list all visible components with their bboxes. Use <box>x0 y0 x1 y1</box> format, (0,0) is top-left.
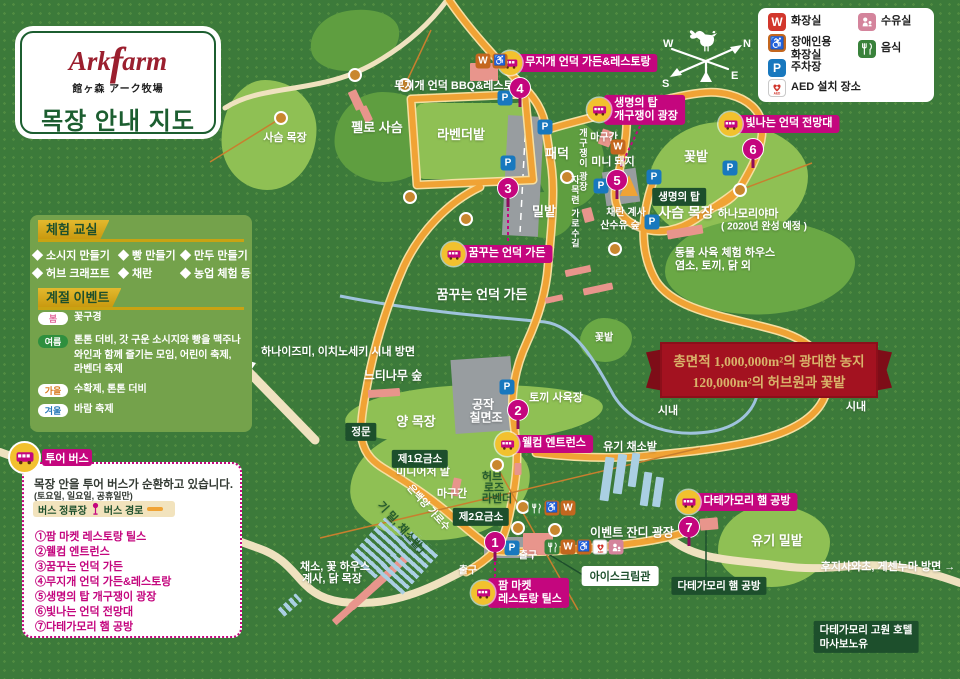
map-area-label: 유기 밀밭 <box>751 534 802 548</box>
bus-stop-facility-badge: 생명의 탑개구쟁이 광장 <box>587 95 685 125</box>
tree-marker-icon <box>548 523 562 537</box>
accessible-toilet-icon: ♿ <box>493 54 508 69</box>
field-patch <box>335 92 440 182</box>
bus-stop-number: 3 <box>504 181 511 196</box>
brand-text: Ark <box>69 48 111 75</box>
parking-icon: P <box>723 161 738 176</box>
legend-box <box>758 8 934 102</box>
building <box>613 454 627 495</box>
bus-stop-facility-badge: 웰컴 엔트런스 <box>495 432 593 456</box>
parking-icon: P <box>538 120 553 135</box>
tree-marker-icon <box>403 190 417 204</box>
ribbon-line2: 120,000m²의 허브원과 꽃밭 <box>693 371 846 391</box>
map-area-label: 토끼 사육장 <box>529 392 583 404</box>
facility-badge: 다테가모리 햄 공방 <box>671 577 766 595</box>
ribbon-body: 총면적 1,000,000m²의 광대한 농지 120,000m²의 허브원과 … <box>660 342 878 398</box>
field-patch <box>538 120 604 208</box>
farm-guide-map: Arkfarm 館ヶ森 アーク牧場 목장 안내 지도 W 화장실 ♿ 장애인용 … <box>0 0 960 679</box>
facility-badge: 생명의 탑 <box>652 188 706 206</box>
bus-stop-number-marker: 6 <box>742 138 764 160</box>
bus-icon <box>676 490 700 514</box>
map-area-label: 채란 계사 <box>606 208 646 219</box>
map-area-label: 꽃밭 <box>595 333 613 344</box>
building <box>350 517 410 578</box>
facility-badge: 다테가모리 고원 호텔마사보노유 <box>814 621 919 653</box>
building <box>599 457 614 502</box>
map-area-label: 유기 채소밭 <box>603 441 657 453</box>
map-area-label: 펠로 사슴 <box>351 121 402 135</box>
field-patch <box>518 192 574 238</box>
building <box>332 599 360 626</box>
tree-marker-icon <box>459 212 473 226</box>
banner-underline <box>38 239 244 242</box>
field-patch <box>665 220 855 315</box>
map-area-label: 염소, 토끼, 닭 외 <box>675 260 751 272</box>
facility-badge: 정문 <box>345 423 376 441</box>
experience-panel: 체험 교실 계절 이벤트 <box>30 215 252 432</box>
map-area-label: 양 목장 <box>396 415 436 429</box>
compass-s: S <box>662 78 669 90</box>
tree-marker-icon <box>348 68 362 82</box>
ribbon-line1: 총면적 1,000,000m²의 광대한 농지 <box>673 350 864 370</box>
map-area-label: 라벤더 <box>482 493 512 505</box>
map-area-label: 동물 사육 체험 하우스 <box>675 247 775 259</box>
accessible-toilet-icon: ♿ <box>545 501 560 516</box>
map-area-label: 미니어처 말 <box>396 466 450 478</box>
building <box>581 207 594 223</box>
toilet-icon: W <box>561 501 576 516</box>
tower-marker <box>620 175 638 196</box>
map-area-label: 라벤더밭 <box>437 128 485 142</box>
building <box>376 529 440 595</box>
page-title: 목장 안내 지도 <box>41 101 195 136</box>
toilet-icon: W <box>611 140 626 155</box>
building <box>368 388 400 398</box>
area-info-ribbon: 총면적 1,000,000m²의 광대한 농지 120,000m²의 허브원과 … <box>646 342 892 398</box>
bus-stop-number-marker: 1 <box>484 531 506 553</box>
logo-plaque: Arkfarm 館ヶ森 アーク牧場 목장 안내 지도 <box>15 26 221 139</box>
field-patch <box>648 122 808 242</box>
building <box>666 224 703 239</box>
map-area-label: 은백양 가로수 <box>405 483 452 533</box>
building <box>598 128 615 147</box>
compass-e: E <box>731 70 738 82</box>
map-area-label: 이벤트 잔디 광장 <box>590 526 674 539</box>
field-patch <box>222 80 317 190</box>
building <box>348 574 388 611</box>
compass-n: N <box>743 38 751 50</box>
map-area-label: ( 2020년 완성 예정 ) <box>721 222 807 233</box>
seasonal-title-banner: 계절 이벤트 <box>38 288 121 307</box>
map-area-label: 하나모리야마 <box>718 208 779 220</box>
bus-route-line-sample <box>147 507 163 511</box>
brand-f: f <box>110 42 123 82</box>
bus-stop-number: 6 <box>749 142 756 157</box>
bus-icon <box>718 112 742 136</box>
banner-underline-2 <box>38 307 244 310</box>
map-area-label: 후지사와초, 게센누마 방면 → <box>821 561 956 573</box>
building <box>700 517 719 531</box>
parking-icon: P <box>594 179 609 194</box>
map-area-label: 자목련 가로수길 <box>569 175 579 249</box>
logo-plaque-inner: Arkfarm 館ヶ森 アーク牧場 목장 안내 지도 <box>20 31 216 134</box>
map-area-label: 무지개 언덕 BBQ&레스토랑 <box>394 80 524 92</box>
building <box>652 477 664 508</box>
map-area-label: 칠면조 <box>469 411 502 424</box>
map-area-label: 사슴 목장 <box>263 132 307 144</box>
bus-icon <box>442 242 466 266</box>
bus-stop-key-label: 버스 정류장 <box>38 502 87 517</box>
food-icon <box>545 540 560 555</box>
map-area-label: 기 밀, 채소밭」 <box>375 500 431 561</box>
bus-stop-facility-label: 다테가모리 햄 공방 <box>693 493 797 510</box>
brand-logo: Arkfarm <box>69 37 167 77</box>
field-patch <box>305 3 404 78</box>
bus-stop-facility-badge: 꿈꾸는 언덕 가든 <box>442 242 553 266</box>
bus-stop-number-marker: 7 <box>678 516 700 538</box>
field-patch <box>415 103 529 179</box>
map-area-label: 미니 돼지 <box>591 156 635 168</box>
facility-badge: 제1요금소 <box>392 450 448 468</box>
tour-bus-icon <box>8 441 41 474</box>
tree-marker-icon <box>560 170 574 184</box>
map-area-label: 계사, 닭 목장 <box>302 573 362 585</box>
parking-icon: P <box>645 215 660 230</box>
parking-icon: P <box>505 541 520 556</box>
building <box>348 89 365 111</box>
map-area-label: 사슴 목장 <box>658 205 713 220</box>
building <box>278 593 303 616</box>
food-icon <box>529 501 544 516</box>
map-area-label: 공작 <box>472 398 494 411</box>
parking-icon: P <box>498 91 513 106</box>
parking-icon: P <box>647 170 662 185</box>
bus-icon <box>587 98 611 122</box>
building <box>515 463 522 475</box>
map-area-label: 시내 <box>658 405 678 417</box>
field-patch <box>718 505 830 587</box>
bus-route-key-label: 버스 경로 <box>104 502 144 517</box>
map-area-label: 마구간 <box>437 488 467 500</box>
map-area-label: 꽃밭 <box>684 150 708 164</box>
building <box>470 63 498 81</box>
field-patch <box>580 318 632 362</box>
map-area-label: 패덕 <box>545 147 569 161</box>
bus-stop-facility-label: 생명의 탑개구쟁이 광장 <box>604 95 685 125</box>
bus-stop-facility-label: 무지개 언덕 가든&레스토랑 <box>515 54 657 71</box>
bus-stop-number: 2 <box>514 403 521 418</box>
building <box>370 554 410 591</box>
bus-stop-facility-label: 웰컴 엔트런스 <box>512 435 593 452</box>
bus-icon <box>471 581 495 605</box>
map-area-label: 꿈꾸는 언덕 가든 <box>437 288 528 302</box>
building <box>359 105 373 123</box>
map-area-label: 하나이즈미, 이치노세키 시내 방면 <box>261 346 415 358</box>
field-patch <box>348 425 532 543</box>
map-area-label: 출구 <box>459 566 477 577</box>
building <box>545 294 564 304</box>
map-area-label: 산수유 숲 <box>600 221 640 232</box>
bus-stop-facility-label: 빛나는 언덕 전망대 <box>735 115 839 132</box>
tree-marker-icon <box>274 111 288 125</box>
bus-icon <box>495 432 519 456</box>
bus-stop-number-marker: 5 <box>606 169 628 191</box>
bus-stop-facility-label: 팜 마켓레스토랑 틸스 <box>488 578 569 608</box>
field-patch <box>344 381 604 448</box>
experience-title-banner: 체험 교실 <box>38 220 109 239</box>
building <box>628 453 641 488</box>
facility-badge-light: 아이스크림관 <box>582 566 659 586</box>
tree-marker-icon <box>511 521 525 535</box>
map-area-label: 출구 <box>519 551 537 562</box>
building <box>450 477 462 496</box>
tree-marker-icon <box>733 183 747 197</box>
tree-marker-icon <box>490 458 504 472</box>
building <box>583 282 614 295</box>
map-area-label: 시내 <box>846 401 866 413</box>
bus-icon <box>498 51 522 75</box>
building <box>523 533 553 555</box>
parking-icon: P <box>501 156 516 171</box>
toilet-icon: W <box>561 540 576 555</box>
bus-stop-facility-badge: 다테가모리 햄 공방 <box>676 490 797 514</box>
compass-weathervane: N W E S <box>662 25 757 91</box>
bus-stop-facility-badge: 팜 마켓레스토랑 틸스 <box>471 578 569 608</box>
bus-stop-number: 4 <box>516 81 523 96</box>
bus-stop-number: 5 <box>613 173 620 188</box>
nursing-room-icon <box>609 540 624 555</box>
map-area-label: 마구간 <box>590 133 618 144</box>
bus-stop-facility-label: 꿈꾸는 언덕 가든 <box>459 245 553 262</box>
tour-bus-key: 버스 정류장 버스 경로 <box>33 501 175 517</box>
map-area-label: 허브 <box>482 471 502 483</box>
bus-stop-facility-badge: 빛나는 언덕 전망대 <box>718 112 839 136</box>
map-area-label: 개구쟁이 광장 <box>577 128 587 192</box>
tree-marker-icon <box>516 500 530 514</box>
map-area-label: 채소, 꽃 하우스 <box>300 561 370 573</box>
map-area-label: 로즈 <box>484 482 504 494</box>
accessible-toilet-icon: ♿ <box>577 540 592 555</box>
bus-stop-number-marker: 2 <box>507 399 529 421</box>
bus-stop-number-marker: 4 <box>509 77 531 99</box>
bus-stop-number: 7 <box>685 520 692 535</box>
experience-title: 체험 교실 <box>46 222 97 237</box>
map-area-label: 밀밭 <box>532 205 556 219</box>
parking-icon: P <box>500 380 515 395</box>
facility-badge: 제2요금소 <box>453 508 509 526</box>
building <box>565 265 592 277</box>
building <box>640 472 653 507</box>
bus-stop-facility-badge: 무지개 언덕 가든&레스토랑 <box>498 51 657 75</box>
map-area-label: 느티나무 숲 <box>364 369 423 382</box>
aed-icon <box>593 540 608 555</box>
brand-text-2: arm <box>122 48 167 75</box>
compass-w: W <box>663 38 674 50</box>
bus-stop-pole-icon <box>91 502 100 516</box>
tree-marker-icon <box>398 78 412 92</box>
tree-marker-icon <box>608 242 622 256</box>
toilet-icon: W <box>476 54 491 69</box>
seasonal-title: 계절 이벤트 <box>46 290 109 305</box>
bus-stop-number: 1 <box>491 535 498 550</box>
bus-stop-number-marker: 3 <box>497 177 519 199</box>
tour-bus-title: 투어 버스 <box>42 449 92 466</box>
